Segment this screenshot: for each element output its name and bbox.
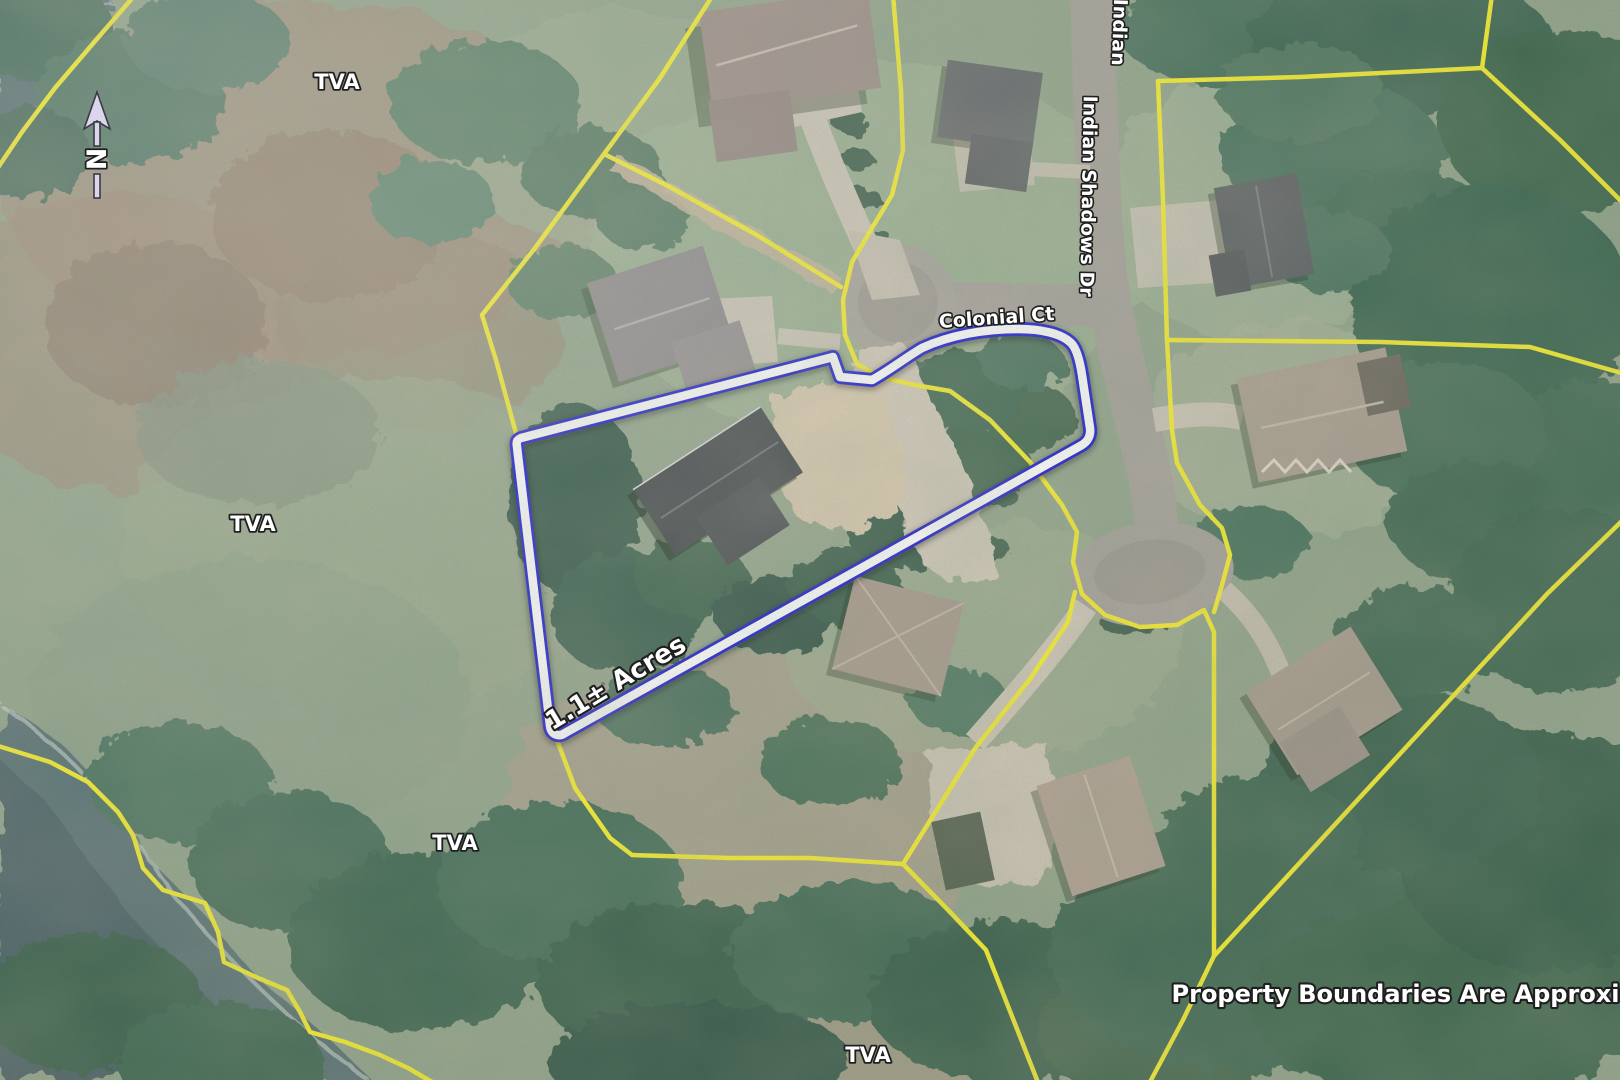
label-indian-shadows-dr: Indian Shadows Dr bbox=[1075, 95, 1101, 297]
label-tva-south: TVA bbox=[845, 1043, 891, 1067]
parcel-map: N TVA TVA TVA TVA Colonial Ct Indian Sha… bbox=[0, 0, 1620, 1080]
label-disclaimer: Property Boundaries Are Approximate bbox=[1172, 980, 1620, 1008]
label-tva-southwest: TVA bbox=[432, 831, 478, 855]
label-tva-west: TVA bbox=[230, 512, 276, 536]
label-indian-partial: Indian bbox=[1107, 0, 1131, 66]
north-label: N bbox=[82, 148, 113, 171]
label-tva-nw: TVA bbox=[314, 70, 360, 94]
haze-overlay bbox=[0, 0, 1620, 1080]
map-canvas: N TVA TVA TVA TVA Colonial Ct Indian Sha… bbox=[0, 0, 1620, 1080]
